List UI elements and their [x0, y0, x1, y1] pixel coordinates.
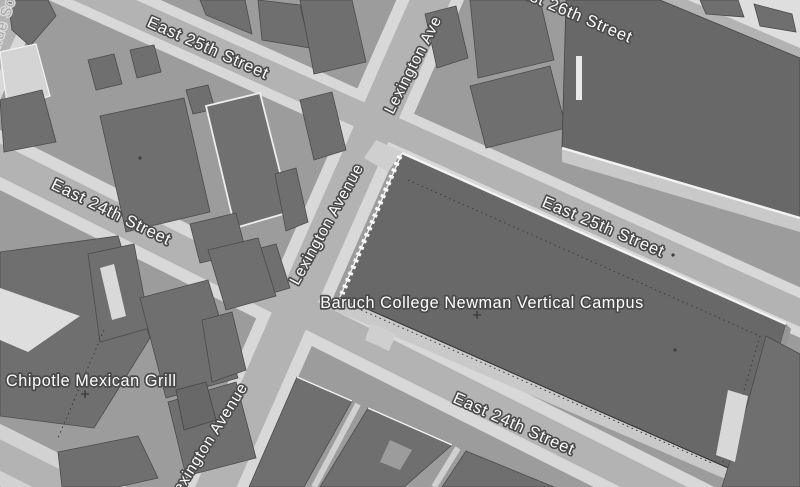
- poi-label-chipotle[interactable]: Chipotle Mexican Grill: [6, 372, 177, 390]
- map-canvas[interactable]: East 25th Street East 25th Street East 2…: [0, 0, 800, 487]
- poi-dot: [673, 348, 676, 351]
- building-roof-detail: [576, 56, 582, 100]
- poi-label-baruch[interactable]: Baruch College Newman Vertical Campus: [320, 294, 644, 312]
- poi-dot: [138, 156, 141, 159]
- poi-dot: [671, 253, 674, 256]
- map-svg: East 25th Street East 25th Street East 2…: [0, 0, 800, 487]
